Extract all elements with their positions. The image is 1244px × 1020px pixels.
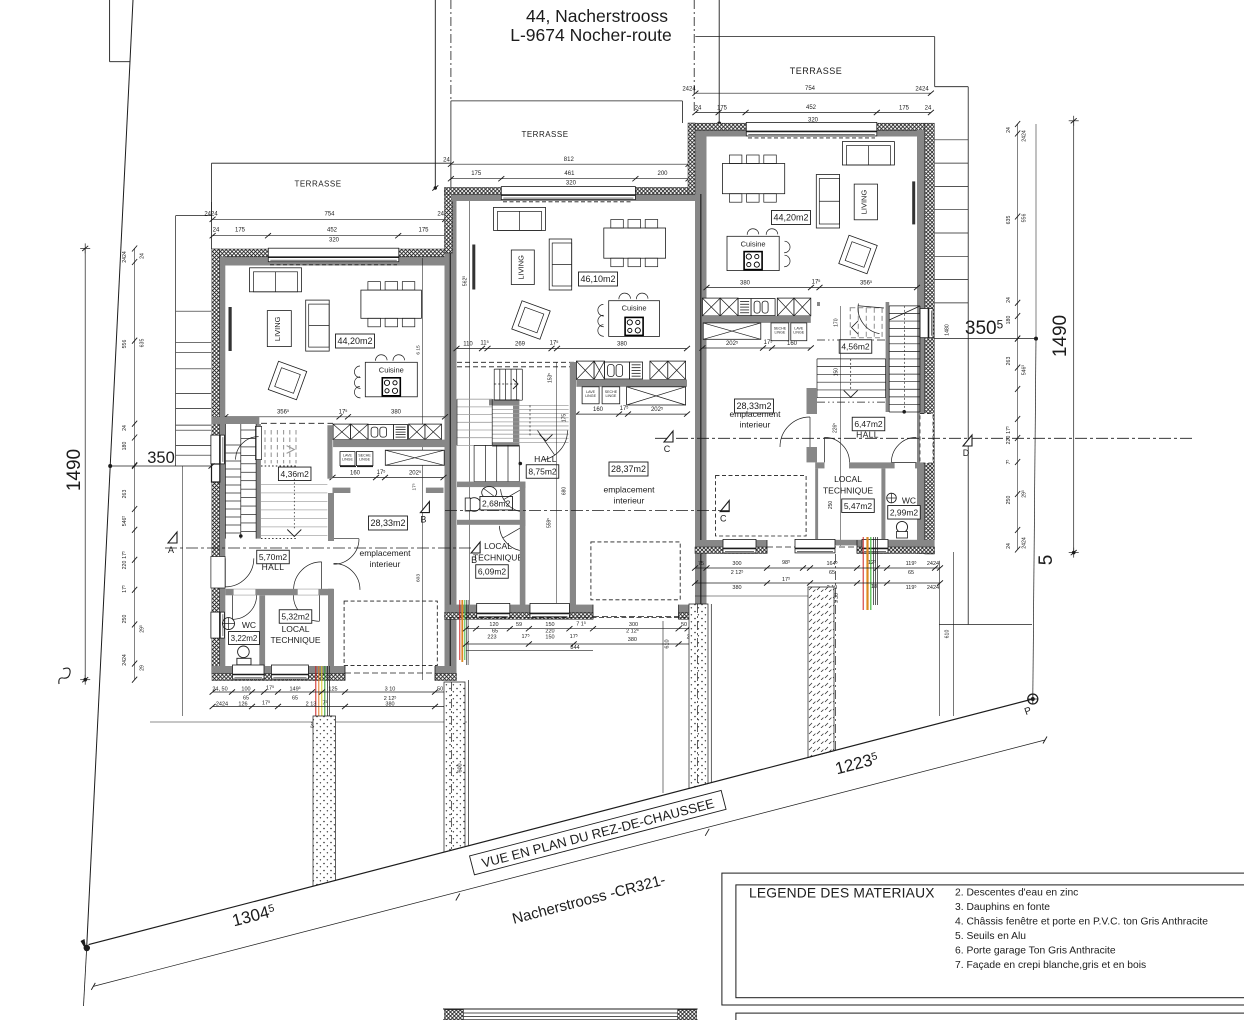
- svg-text:110: 110: [463, 342, 473, 348]
- svg-text:WC: WC: [902, 496, 916, 506]
- svg-text:Cuisine: Cuisine: [741, 239, 766, 248]
- svg-text:160: 160: [350, 471, 361, 477]
- svg-text:380: 380: [391, 410, 402, 416]
- svg-text:2424: 2424: [122, 251, 128, 263]
- svg-text:TECHNIQUE: TECHNIQUE: [823, 485, 873, 495]
- svg-text:HALL: HALL: [262, 562, 285, 572]
- svg-text:24: 24: [122, 425, 128, 431]
- svg-text:320: 320: [329, 238, 340, 244]
- svg-text:65: 65: [492, 628, 498, 634]
- svg-text:223: 223: [487, 635, 496, 641]
- svg-text:44,20m2: 44,20m2: [337, 336, 372, 346]
- svg-text:250: 250: [1006, 496, 1012, 505]
- svg-text:24: 24: [1006, 543, 1012, 549]
- svg-text:TECHNIQUE: TECHNIQUE: [270, 635, 320, 645]
- svg-text:2. Descentes d'eau en zinc: 2. Descentes d'eau en zinc: [955, 888, 1078, 899]
- svg-text:18: 18: [871, 584, 877, 590]
- svg-text:150: 150: [545, 622, 554, 628]
- svg-text:24: 24: [1006, 297, 1012, 303]
- svg-text:754: 754: [324, 212, 335, 218]
- svg-text:LOCAL: LOCAL: [282, 624, 310, 634]
- svg-text:556: 556: [1022, 214, 1028, 223]
- svg-text:250: 250: [828, 501, 834, 510]
- svg-text:LINGE: LINGE: [342, 458, 353, 462]
- svg-text:LIVING: LIVING: [516, 255, 525, 280]
- svg-text:269: 269: [515, 342, 526, 348]
- svg-text:emplacement: emplacement: [359, 548, 411, 558]
- svg-text:Cuisine: Cuisine: [622, 304, 647, 313]
- svg-text:603: 603: [416, 574, 422, 582]
- svg-text:6 15: 6 15: [416, 345, 422, 355]
- svg-text:635: 635: [140, 339, 146, 348]
- svg-text:180: 180: [1006, 316, 1012, 325]
- svg-text:C: C: [720, 514, 727, 524]
- svg-text:44,20m2: 44,20m2: [773, 213, 808, 223]
- svg-text:LINGE: LINGE: [585, 394, 596, 398]
- svg-text:LOCAL: LOCAL: [484, 541, 512, 551]
- svg-text:LOCAL: LOCAL: [834, 474, 862, 484]
- svg-text:150: 150: [545, 635, 554, 641]
- svg-text:LIVING: LIVING: [859, 190, 868, 215]
- svg-text:6,47m2: 6,47m2: [854, 419, 883, 429]
- svg-text:175: 175: [418, 228, 429, 234]
- svg-text:24: 24: [925, 106, 932, 112]
- svg-text:TERRASSE: TERRASSE: [521, 130, 568, 139]
- svg-text:24: 24: [1006, 127, 1012, 133]
- svg-text:150: 150: [834, 368, 840, 377]
- svg-text:1490: 1490: [64, 449, 85, 491]
- svg-text:2424: 2424: [1022, 537, 1028, 549]
- svg-text:754: 754: [805, 86, 816, 92]
- svg-text:600: 600: [458, 763, 464, 772]
- svg-text:interieur: interieur: [614, 496, 645, 506]
- svg-text:175: 175: [471, 171, 482, 177]
- svg-text:2424: 2424: [927, 561, 939, 567]
- svg-text:7. Façade en crepi blanche,gri: 7. Façade en crepi blanche,gris et en bo…: [955, 960, 1146, 971]
- svg-text:LIVING: LIVING: [273, 316, 282, 341]
- svg-text:126: 126: [238, 701, 247, 707]
- svg-text:556: 556: [122, 340, 128, 349]
- svg-text:24: 24: [213, 228, 220, 234]
- svg-text:380: 380: [385, 701, 394, 707]
- svg-text:300: 300: [732, 561, 741, 567]
- svg-text:4,56m2: 4,56m2: [841, 342, 870, 352]
- svg-text:4,36m2: 4,36m2: [281, 469, 310, 479]
- svg-text:2424: 2424: [216, 701, 228, 707]
- svg-text:125: 125: [328, 687, 337, 693]
- svg-text:380: 380: [740, 281, 751, 287]
- svg-text:1490: 1490: [1050, 315, 1071, 357]
- svg-text:263: 263: [122, 490, 128, 499]
- svg-text:A: A: [168, 545, 174, 555]
- svg-text:263: 263: [1006, 357, 1012, 366]
- svg-text:2424: 2424: [204, 212, 218, 218]
- svg-text:interieur: interieur: [740, 420, 771, 430]
- svg-text:24: 24: [443, 158, 450, 164]
- svg-text:2424: 2424: [927, 585, 939, 591]
- svg-text:interieur: interieur: [370, 559, 401, 569]
- svg-text:TECHNIQUE: TECHNIQUE: [473, 553, 523, 563]
- svg-text:1480: 1480: [945, 324, 951, 336]
- svg-text:5,70m2: 5,70m2: [259, 552, 288, 562]
- svg-text:65: 65: [292, 696, 298, 702]
- svg-text:844: 844: [570, 645, 579, 651]
- svg-text:452: 452: [806, 105, 817, 111]
- svg-text:250: 250: [122, 615, 128, 624]
- svg-text:65: 65: [829, 570, 835, 576]
- svg-text:2 13: 2 13: [306, 701, 317, 707]
- svg-text:8,75m2: 8,75m2: [528, 467, 557, 477]
- svg-text:635: 635: [1006, 216, 1012, 225]
- svg-text:380: 380: [617, 342, 628, 348]
- svg-text:6,09m2: 6,09m2: [478, 567, 507, 577]
- svg-text:29: 29: [140, 665, 146, 671]
- svg-text:24: 24: [695, 106, 702, 112]
- svg-text:5,47m2: 5,47m2: [844, 501, 873, 511]
- svg-text:220: 220: [545, 628, 554, 634]
- svg-text:680: 680: [562, 487, 568, 496]
- svg-text:D: D: [963, 448, 970, 458]
- svg-text:44, Nacherstrooss: 44, Nacherstrooss: [526, 6, 668, 26]
- svg-text:5: 5: [1036, 555, 1057, 566]
- svg-text:2424: 2424: [915, 87, 929, 93]
- svg-text:LINGE: LINGE: [359, 458, 370, 462]
- svg-text:59: 59: [516, 622, 522, 628]
- svg-text:610: 610: [665, 639, 671, 648]
- svg-text:100: 100: [241, 687, 250, 693]
- svg-text:380: 380: [732, 585, 741, 591]
- svg-text:LEGENDE DES MATERIAUX: LEGENDE DES MATERIAUX: [749, 886, 935, 901]
- svg-text:TERRASSE: TERRASSE: [790, 66, 843, 76]
- svg-text:180: 180: [122, 442, 128, 451]
- svg-text:75: 75: [698, 561, 704, 567]
- svg-text:WC: WC: [242, 620, 256, 630]
- svg-text:452: 452: [327, 228, 338, 234]
- svg-text:C: C: [664, 444, 671, 454]
- svg-text:LINGE: LINGE: [775, 331, 786, 335]
- svg-text:emplacement: emplacement: [603, 485, 655, 495]
- svg-text:Cuisine: Cuisine: [379, 365, 404, 374]
- svg-text:350: 350: [147, 449, 175, 467]
- svg-text:L-9674 Nocher-route: L-9674 Nocher-route: [510, 25, 671, 45]
- svg-text:emplacement: emplacement: [729, 409, 781, 419]
- svg-text:9 30: 9 30: [834, 593, 840, 603]
- svg-text:B: B: [420, 515, 426, 525]
- svg-text:5,32m2: 5,32m2: [281, 612, 310, 622]
- svg-text:28,37m2: 28,37m2: [611, 464, 646, 474]
- svg-text:220: 220: [122, 561, 128, 570]
- svg-text:3,22m2: 3,22m2: [231, 634, 258, 643]
- svg-text:175: 175: [899, 106, 910, 112]
- svg-text:24: 24: [140, 253, 146, 259]
- svg-text:610: 610: [945, 630, 951, 639]
- svg-text:461: 461: [564, 171, 575, 177]
- svg-text:2424: 2424: [682, 87, 696, 93]
- svg-text:380: 380: [628, 637, 637, 643]
- svg-text:5. Seuils en Alu: 5. Seuils en Alu: [955, 931, 1026, 942]
- svg-text:320: 320: [566, 181, 577, 187]
- svg-text:160: 160: [787, 341, 798, 347]
- svg-text:175: 175: [235, 228, 246, 234]
- svg-text:3. Dauphins en fonte: 3. Dauphins en fonte: [955, 902, 1050, 913]
- svg-text:2424: 2424: [122, 654, 128, 666]
- svg-text:160: 160: [593, 407, 604, 413]
- svg-text:220: 220: [1006, 436, 1012, 445]
- svg-text:TERRASSE: TERRASSE: [294, 180, 341, 189]
- svg-text:200: 200: [657, 171, 668, 177]
- svg-text:24, 50: 24, 50: [212, 687, 227, 693]
- svg-text:B: B: [471, 555, 477, 565]
- svg-text:LINGE: LINGE: [606, 394, 617, 398]
- svg-text:65: 65: [908, 570, 914, 576]
- svg-text:LINGE: LINGE: [793, 331, 804, 335]
- svg-text:812: 812: [564, 157, 575, 163]
- svg-text:50: 50: [681, 622, 687, 628]
- svg-text:28,33m2: 28,33m2: [370, 518, 405, 528]
- svg-text:4. Châssis fenêtre et porte en: 4. Châssis fenêtre et porte en P.V.C. to…: [955, 916, 1208, 927]
- svg-text:3 10: 3 10: [385, 687, 396, 693]
- svg-text:6. Porte garage Ton Gris Anth: 6. Porte garage Ton Gris Anthracite: [955, 945, 1116, 956]
- svg-text:170: 170: [834, 318, 840, 327]
- svg-text:2424: 2424: [1022, 130, 1028, 142]
- svg-text:46,10m2: 46,10m2: [580, 274, 615, 284]
- svg-text:175: 175: [717, 106, 728, 112]
- svg-text:175: 175: [562, 414, 568, 423]
- svg-text:120: 120: [489, 622, 498, 628]
- svg-text:2,99m2: 2,99m2: [890, 507, 919, 517]
